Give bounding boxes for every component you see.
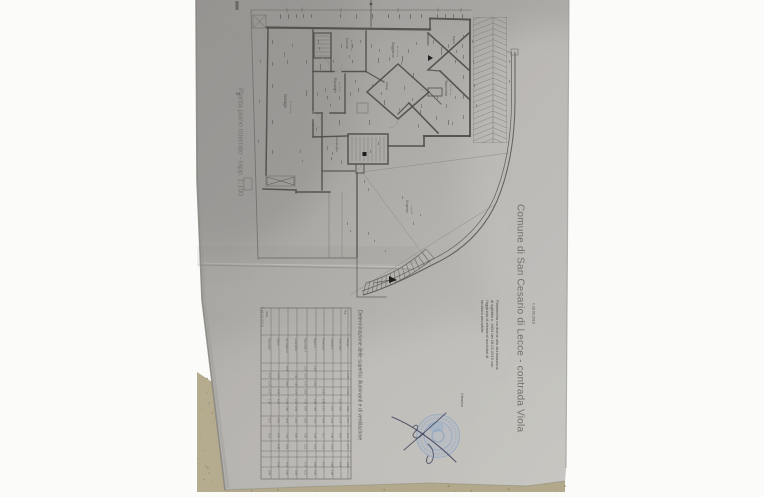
svg-text:Disimpegno: Disimpegno <box>335 136 339 152</box>
svg-text:ab. 38.70 mq: ab. 38.70 mq <box>289 101 291 114</box>
svg-text:Bagno: Bagno <box>277 338 281 346</box>
svg-text:9.03: 9.03 <box>330 418 334 424</box>
svg-text:Bagno: Bagno <box>452 36 456 45</box>
svg-text:4.54: 4.54 <box>277 373 281 379</box>
svg-text:4.50: 4.50 <box>339 406 343 412</box>
svg-text:6.30: 6.30 <box>313 470 317 476</box>
svg-text:3.53: 3.53 <box>346 462 350 468</box>
svg-text:6.54: 6.54 <box>285 418 289 424</box>
svg-text:il tecnico: il tecnico <box>460 393 464 407</box>
svg-text:4.54: 4.54 <box>268 433 272 439</box>
svg-text:Camera 3: Camera 3 <box>330 338 334 350</box>
svg-text:7.08: 7.08 <box>294 381 298 387</box>
svg-text:6.59: 6.59 <box>346 389 350 395</box>
svg-text:1.16: 1.16 <box>339 399 343 405</box>
svg-text:2.79: 2.79 <box>294 389 298 395</box>
svg-text:4.68: 4.68 <box>322 418 326 424</box>
svg-text:5.47: 5.47 <box>304 381 308 387</box>
svg-text:7.12: 7.12 <box>322 444 326 450</box>
svg-text:3.71: 3.71 <box>346 433 350 439</box>
svg-text:5.96: 5.96 <box>346 406 350 412</box>
svg-text:Determinazione delle superfici: Determinazione delle superfici illuminan… <box>357 310 363 440</box>
svg-text:3.31: 3.31 <box>285 462 289 468</box>
svg-text:2.40: 2.40 <box>322 389 326 395</box>
svg-text:Lavanderia: Lavanderia <box>294 338 298 351</box>
svg-text:5.57: 5.57 <box>330 406 334 412</box>
svg-text:2.24: 2.24 <box>304 366 308 372</box>
svg-text:8.21: 8.21 <box>304 470 308 476</box>
svg-text:1.82: 1.82 <box>313 381 317 387</box>
svg-text:0.78: 0.78 <box>346 373 350 379</box>
svg-text:Sup.: Sup. <box>344 310 347 315</box>
svg-text:2.78: 2.78 <box>339 418 343 424</box>
svg-text:4.61: 4.61 <box>313 444 317 450</box>
svg-text:Vano scala: Vano scala <box>339 338 343 351</box>
svg-text:Garage: Garage <box>346 338 350 347</box>
svg-text:Aut. bagno A: Aut. bagno A <box>285 338 289 353</box>
svg-text:lì 28.03.2019: lì 28.03.2019 <box>260 307 264 327</box>
svg-text:8.65: 8.65 <box>304 406 308 412</box>
svg-text:Cucina: Cucina <box>345 38 349 49</box>
svg-text:9.66: 9.66 <box>304 389 308 395</box>
svg-text:4.86: 4.86 <box>304 433 308 439</box>
svg-text:7.93: 7.93 <box>285 433 289 439</box>
svg-text:Bagno 2: Bagno 2 <box>313 338 317 348</box>
svg-text:ab. 14.2 mq: ab. 14.2 mq <box>396 46 398 57</box>
svg-text:Pianta piano interrato - rapp.: Pianta piano interrato - rapp. 1:100 <box>237 88 244 196</box>
svg-text:mq 102.5: mq 102.5 <box>410 206 412 215</box>
svg-text:7.91: 7.91 <box>313 418 317 424</box>
svg-text:8.48: 8.48 <box>277 444 281 450</box>
svg-text:1.89: 1.89 <box>322 399 326 405</box>
svg-text:0.50: 0.50 <box>285 381 289 387</box>
svg-text:ab. 9.60 mq: ab. 9.60 mq <box>350 40 352 51</box>
svg-text:ab. 16.4 mq: ab. 16.4 mq <box>449 84 451 95</box>
svg-text:3.32: 3.32 <box>330 444 334 450</box>
svg-text:Comune di San Cesario di Lecce: Comune di San Cesario di Lecce - contrad… <box>515 204 526 432</box>
svg-text:9.54: 9.54 <box>339 433 343 439</box>
svg-text:Vano: Vano <box>265 311 269 317</box>
svg-text:7.66: 7.66 <box>313 406 317 412</box>
svg-text:3: 3 <box>234 92 240 95</box>
svg-text:Tavernetta: Tavernetta <box>322 338 326 351</box>
svg-text:1.22: 1.22 <box>277 399 281 405</box>
svg-text:4.90: 4.90 <box>285 470 289 476</box>
svg-text:struttura amovibile: struttura amovibile <box>480 300 485 333</box>
svg-text:1.10: 1.10 <box>313 366 317 372</box>
svg-text:8.69: 8.69 <box>304 418 308 424</box>
svg-text:8.47: 8.47 <box>268 389 272 395</box>
svg-text:2.51: 2.51 <box>285 444 289 450</box>
svg-text:8.08: 8.08 <box>268 470 272 476</box>
svg-text:7.03: 7.03 <box>304 399 308 405</box>
svg-text:Soggiorno: Soggiorno <box>391 42 395 58</box>
svg-text:Disimp.: Disimp. <box>385 82 389 91</box>
svg-text:3.09: 3.09 <box>294 470 298 476</box>
svg-text:8.27: 8.27 <box>268 418 272 424</box>
svg-text:5.49: 5.49 <box>294 406 298 412</box>
svg-text:Ripostiglio: Ripostiglio <box>268 338 272 351</box>
svg-text:9.34: 9.34 <box>304 462 308 468</box>
svg-text:9.84: 9.84 <box>313 399 317 405</box>
svg-text:ab. 7.2 mq: ab. 7.2 mq <box>338 82 340 91</box>
svg-text:3.17: 3.17 <box>322 433 326 439</box>
svg-text:4.71: 4.71 <box>322 462 326 468</box>
svg-text:1.40: 1.40 <box>268 399 272 405</box>
svg-text:2.16: 2.16 <box>294 418 298 424</box>
svg-text:2.15: 2.15 <box>304 444 308 450</box>
svg-text:7.24: 7.24 <box>285 399 289 405</box>
svg-text:Garage: Garage <box>283 94 288 109</box>
svg-text:2.42: 2.42 <box>277 462 281 468</box>
svg-text:6.77: 6.77 <box>346 444 350 450</box>
svg-text:7.60: 7.60 <box>285 406 289 412</box>
svg-text:1.08: 1.08 <box>330 433 334 439</box>
svg-text:Tavernetta: Tavernetta <box>444 80 448 96</box>
svg-text:5.36: 5.36 <box>313 433 317 439</box>
svg-text:Ripostiglio: Ripostiglio <box>333 78 337 93</box>
svg-text:9.43: 9.43 <box>339 462 343 468</box>
svg-text:1.11: 1.11 <box>322 406 326 411</box>
svg-text:8.49: 8.49 <box>277 389 281 395</box>
svg-text:9.81: 9.81 <box>313 462 317 468</box>
svg-text:Scoperto: Scoperto <box>405 200 409 213</box>
svg-text:4.00: 4.00 <box>277 433 281 439</box>
svg-text:1.58: 1.58 <box>330 470 334 476</box>
svg-text:5.21: 5.21 <box>268 381 272 387</box>
svg-text:2.10: 2.10 <box>304 373 308 379</box>
svg-text:5.81: 5.81 <box>330 462 334 468</box>
svg-text:4.81: 4.81 <box>277 418 281 424</box>
svg-text:5.00: 5.00 <box>294 433 298 439</box>
svg-text:8.76: 8.76 <box>285 366 289 372</box>
svg-text:2.23: 2.23 <box>294 399 298 405</box>
svg-text:Ripostiglio 2: Ripostiglio 2 <box>304 338 308 353</box>
svg-text:4.47: 4.47 <box>268 373 272 379</box>
svg-text:7.49: 7.49 <box>294 373 298 379</box>
svg-text:lì 28.03.2019: lì 28.03.2019 <box>532 303 536 324</box>
svg-text:5.07: 5.07 <box>346 418 350 424</box>
